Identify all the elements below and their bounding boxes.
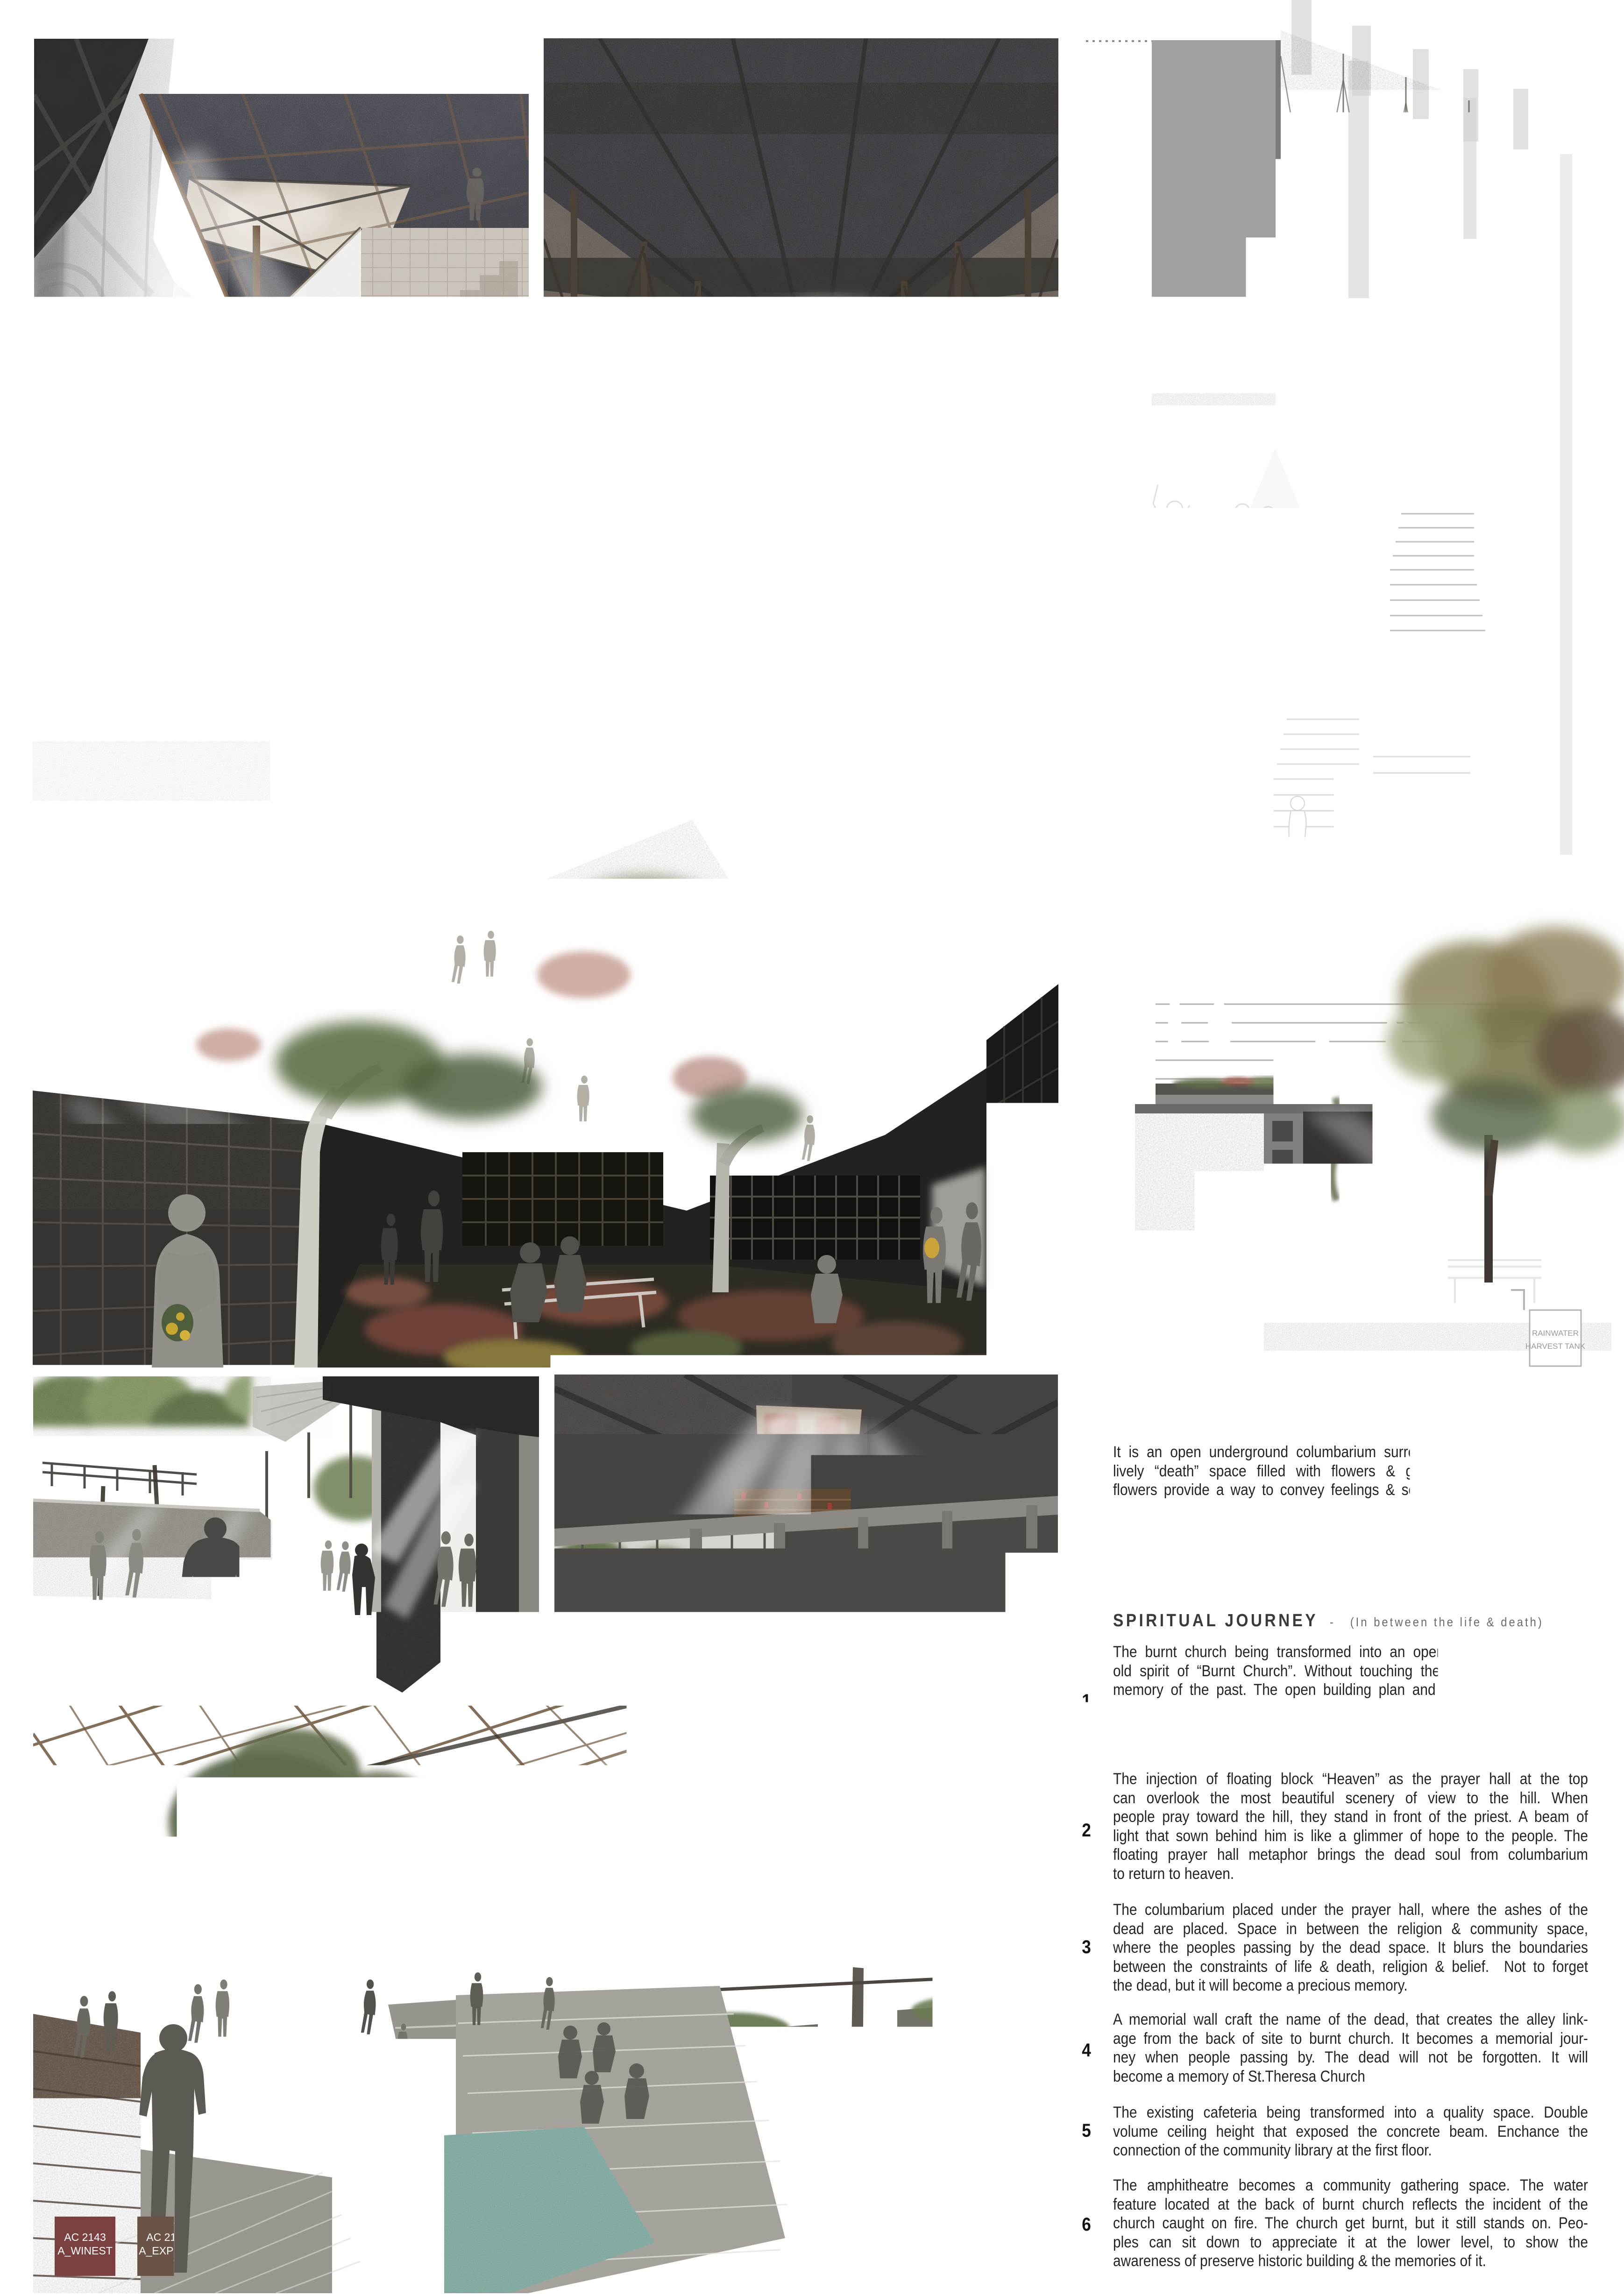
- svg-text:RAINWATER: RAINWATER: [1532, 1329, 1579, 1338]
- svg-text:HARVEST TANK: HARVEST TANK: [1525, 1342, 1586, 1351]
